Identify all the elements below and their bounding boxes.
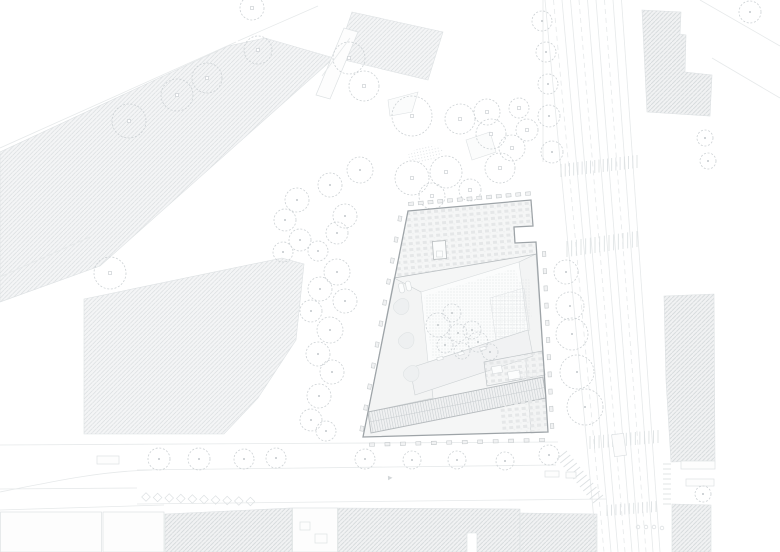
parking-stall <box>246 497 255 506</box>
balcony-tooth <box>398 216 402 222</box>
street-furniture-rect <box>612 433 627 456</box>
tree-trunk-marker <box>299 239 301 241</box>
balcony-tooth <box>428 200 433 204</box>
balcony-tooth <box>493 439 498 443</box>
tree-trunk-marker <box>511 147 514 150</box>
tree-trunk-marker <box>702 493 704 495</box>
balcony-tooth <box>477 196 482 200</box>
street-furniture-rect <box>545 471 559 477</box>
balcony-tooth <box>379 321 383 327</box>
hatched-block-bottom-4 <box>672 504 711 552</box>
tree-trunk-marker <box>584 406 586 408</box>
crosswalk-tick <box>583 483 593 491</box>
tree-trunk-marker <box>411 459 413 461</box>
tree-trunk-marker <box>243 458 245 460</box>
balcony-tooth <box>447 441 452 445</box>
tree-trunk-marker <box>451 312 453 314</box>
bollard <box>652 525 656 529</box>
balcony-tooth <box>367 384 371 390</box>
balcony-tooth <box>544 286 548 291</box>
tree-trunk-marker <box>445 171 448 174</box>
tree-trunk-marker <box>457 332 459 334</box>
tree-trunk-marker <box>344 300 346 302</box>
balcony-tooth <box>478 440 483 444</box>
tree-trunk-marker <box>565 271 567 273</box>
crosswalk <box>567 231 637 257</box>
tree-trunk-marker <box>431 195 434 198</box>
tree-trunk-marker <box>749 11 751 13</box>
balcony-tooth <box>390 258 394 264</box>
balcony-tooth <box>549 406 553 411</box>
balcony-tooth <box>457 198 462 202</box>
tree-trunk-marker <box>348 57 351 60</box>
tree-trunk-marker <box>296 199 298 201</box>
hatched-block-bottom-2 <box>338 508 520 552</box>
road-line <box>0 442 558 445</box>
balcony-tooth <box>360 426 364 432</box>
road-line <box>700 0 780 46</box>
tram-track-line <box>554 0 605 552</box>
tree-trunk-marker <box>469 189 472 192</box>
road-line <box>712 58 780 98</box>
tree-trunk-marker <box>437 324 439 326</box>
tree-trunk-marker <box>336 271 338 273</box>
balcony-tooth <box>516 193 521 197</box>
balcony-tooth <box>496 194 501 198</box>
tree-trunk-marker <box>707 160 709 162</box>
tree-trunk-marker <box>444 344 446 346</box>
balcony-tooth <box>506 193 511 197</box>
tree-trunk-marker <box>548 454 550 456</box>
street-furniture-rect <box>681 461 715 469</box>
balcony-tooth <box>364 405 368 411</box>
tree-trunk-marker <box>571 333 573 335</box>
bollard <box>660 526 664 530</box>
tree-trunk-marker <box>541 20 543 22</box>
balcony-tooth <box>431 441 436 445</box>
road-line <box>137 465 556 470</box>
tree-trunk-marker <box>331 371 333 373</box>
tree-trunk-marker <box>545 51 547 53</box>
context-building-outline <box>293 508 338 552</box>
bottom-road-trees <box>148 448 514 470</box>
balcony-tooth <box>539 438 544 442</box>
street-furniture-rect <box>566 472 576 478</box>
tree-trunk-marker <box>318 395 320 397</box>
hatched-block-bottom-3 <box>520 513 597 552</box>
tree-trunk-marker <box>198 458 200 460</box>
balcony-tooth <box>383 300 387 306</box>
tree-trunk-marker <box>363 85 366 88</box>
hatched-block-bottom-1 <box>165 508 292 552</box>
tree-trunk-marker <box>518 107 521 110</box>
building-layer <box>360 192 554 447</box>
hatched-block-top-right <box>642 10 712 116</box>
parking-stall <box>142 493 151 502</box>
balcony-tooth <box>369 443 374 447</box>
crosswalk-tick <box>580 479 590 487</box>
tram-track-line <box>579 0 625 552</box>
street-furniture-rect <box>315 534 327 543</box>
balcony-tooth <box>486 195 491 199</box>
perimeter-block-building <box>360 192 554 447</box>
tree-trunk-marker <box>486 111 489 114</box>
tree-trunk-marker <box>477 341 479 343</box>
parking-stall <box>188 495 197 504</box>
tree-trunk-marker <box>411 115 414 118</box>
street-furniture-rect <box>97 456 119 464</box>
tree-trunk-marker <box>310 419 312 421</box>
tree-trunk-marker <box>284 219 286 221</box>
balcony-tooth <box>416 442 421 446</box>
tree-trunk-marker <box>547 83 549 85</box>
crosswalk-tick <box>577 475 587 483</box>
balcony-tooth <box>375 342 379 348</box>
tree-trunk-marker <box>325 430 327 432</box>
crosswalk-tick <box>564 459 574 467</box>
balcony-tooth <box>467 197 472 201</box>
balcony-tooth <box>371 363 375 369</box>
context-building-outline <box>1 512 102 552</box>
tree-trunk-marker <box>275 457 277 459</box>
balcony-tooth <box>524 439 529 443</box>
tree-trunk-marker <box>456 459 458 461</box>
tree-trunk-marker <box>282 251 284 253</box>
road-line <box>0 505 164 510</box>
tree-trunk-marker <box>128 120 131 123</box>
balcony-tooth <box>394 237 398 243</box>
context-blocks-layer <box>0 10 715 552</box>
right-wing-dot-strip <box>515 278 532 322</box>
tree-canopy-circle <box>240 0 264 20</box>
tree-trunk-marker <box>176 94 179 97</box>
parking-stall <box>165 494 174 503</box>
parking-stall <box>223 496 232 505</box>
parking-stall <box>153 493 162 502</box>
parking-stall <box>235 497 244 506</box>
street-furniture-rect <box>300 522 310 530</box>
park-layer <box>388 92 496 165</box>
tree-trunk-marker <box>158 458 160 460</box>
tree-trunk-marker <box>319 288 321 290</box>
tree-trunk-marker <box>257 49 260 52</box>
tree-trunk-marker <box>411 177 414 180</box>
crosswalk <box>663 464 671 504</box>
gravel-dot-patch <box>406 143 444 164</box>
tree-trunk-marker <box>569 305 571 307</box>
site-plan <box>0 0 780 552</box>
balcony-tooth <box>385 442 390 446</box>
context-building-outline <box>103 512 164 552</box>
tree-trunk-marker <box>329 184 331 186</box>
road-line <box>137 499 606 504</box>
parking-stall <box>177 494 186 503</box>
balcony-tooth <box>545 303 549 308</box>
planting-bed <box>388 92 418 116</box>
tree-trunk-marker <box>471 329 473 331</box>
tree-trunk-marker <box>336 232 338 234</box>
tree-trunk-marker <box>206 77 209 80</box>
hatched-block-left <box>84 258 304 434</box>
hatched-block-right <box>664 294 715 462</box>
tree-trunk-marker <box>504 460 506 462</box>
tree-trunk-marker <box>251 7 254 10</box>
balcony-tooth <box>543 269 547 274</box>
road-line <box>238 6 318 41</box>
tram-track-line <box>545 0 597 552</box>
balcony-tooth <box>447 198 452 202</box>
balcony-tooth <box>386 279 390 285</box>
balcony-tooth <box>550 423 554 428</box>
tree-trunk-marker <box>317 353 319 355</box>
tree-trunk-marker <box>551 151 553 153</box>
tree-trunk-marker <box>459 118 462 121</box>
street-furniture-rect <box>686 479 714 486</box>
balcony-tooth <box>509 439 514 443</box>
balcony-tooth <box>462 440 467 444</box>
balcony-tooth <box>546 337 550 342</box>
tree-trunk-marker <box>490 133 493 136</box>
tree-trunk-marker <box>359 169 361 171</box>
bollard <box>644 525 648 529</box>
tree-trunk-marker <box>489 351 491 353</box>
site-plan-canvas <box>0 0 780 552</box>
parking-stall <box>200 495 209 504</box>
tree-trunk-marker <box>364 458 366 460</box>
balcony-tooth <box>542 251 546 256</box>
balcony-tooth <box>525 192 530 196</box>
crosswalk <box>557 451 603 503</box>
crosswalk-tick <box>567 463 577 471</box>
rooftop-unit <box>491 365 502 374</box>
balcony-tooth <box>400 442 405 446</box>
balcony-tooth <box>408 202 413 206</box>
crosswalk-tick <box>560 455 570 463</box>
tree-trunk-marker <box>310 310 312 312</box>
tree-trunk-marker <box>317 250 319 252</box>
balcony-tooth <box>549 389 553 394</box>
balcony-tooth <box>548 372 552 377</box>
balcony-tooth <box>547 355 551 360</box>
skylight-inner <box>437 251 443 257</box>
tree-trunk-marker <box>548 115 550 117</box>
tree-trunk-marker <box>109 272 112 275</box>
tram-track-line <box>596 0 639 552</box>
road-arrow <box>388 476 393 481</box>
tree-trunk-marker <box>526 129 529 132</box>
balcony-tooth <box>418 201 423 205</box>
tree-trunk-marker <box>576 371 578 373</box>
tree-trunk-marker <box>499 167 502 170</box>
tree-trunk-marker <box>704 137 706 139</box>
tree-trunk-marker <box>344 215 346 217</box>
tree-trunk-marker <box>329 329 331 331</box>
balcony-tooth <box>545 320 549 325</box>
balcony-tooth <box>438 199 443 203</box>
